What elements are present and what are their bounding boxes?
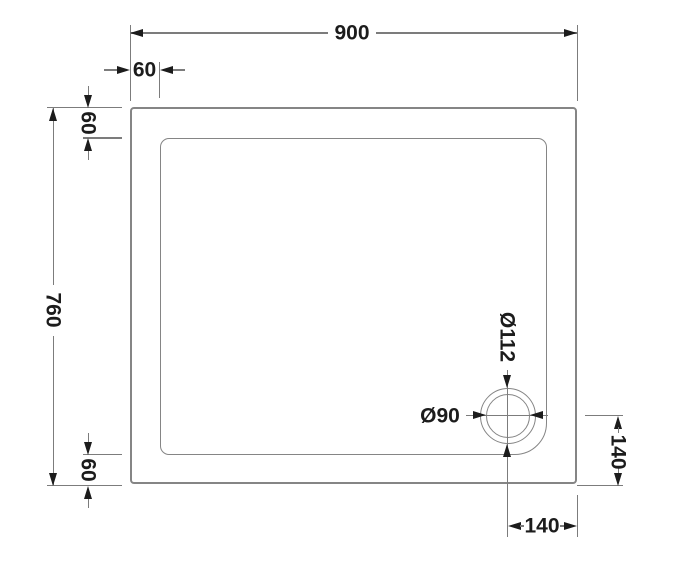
dimension-tail-rim-top-left — [104, 69, 117, 70]
dimension-line-900-right — [376, 32, 577, 33]
arrow-900-right — [564, 29, 577, 37]
dimension-stub-offset-right-top — [618, 427, 619, 433]
arrow-760-top — [49, 108, 57, 121]
arrow-offset-bottom-left — [508, 522, 521, 530]
arrow-rim-left-top-lower — [84, 138, 92, 151]
arrow-waste-inner-right — [530, 411, 543, 419]
dimension-line-900-left — [130, 32, 328, 33]
arrow-rim-left-top-upper — [84, 95, 92, 108]
dim-label-waste-outer-diameter: Ø112 — [497, 312, 518, 362]
dimension-line-760-top — [53, 108, 54, 285]
dim-label-waste-offset-right: 140 — [608, 434, 629, 469]
dimension-tail-rim-left-bottom-lower — [88, 499, 89, 508]
dim-label-waste-offset-bottom: 140 — [524, 516, 559, 537]
arrow-offset-right-bottom — [614, 473, 622, 486]
dim-label-rim-left-bottom: 60 — [78, 458, 99, 481]
arrow-900-left — [130, 29, 143, 37]
arrow-rim-left-bottom-upper — [84, 442, 92, 455]
arrow-rim-left-bottom-lower — [84, 486, 92, 499]
dimension-stub-offset-bottom-left — [520, 525, 524, 526]
dim-label-waste-inner-diameter: Ø90 — [420, 406, 460, 427]
dim-label-rim-left-top: 60 — [78, 111, 99, 134]
technical-drawing-canvas: 900 60 60 760 60 Ø112 Ø90 140 140 — [0, 0, 675, 581]
dim-label-overall-height: 760 — [43, 292, 64, 327]
arrow-offset-bottom-right — [564, 522, 577, 530]
dim-label-rim-top: 60 — [133, 60, 156, 81]
dimension-tail-rim-top-right — [172, 69, 185, 70]
dimension-line-760-bottom — [53, 336, 54, 486]
arrow-waste-outer-bottom — [503, 444, 511, 457]
arrow-waste-outer-top — [503, 375, 511, 388]
arrow-rim-top-right — [160, 66, 173, 74]
arrow-760-bottom — [49, 473, 57, 486]
dim-label-overall-width: 900 — [334, 23, 369, 44]
dimension-tail-rim-left-top-lower — [88, 151, 89, 160]
arrow-rim-top-left — [117, 66, 130, 74]
extension-line-offset-bottom-right — [577, 495, 578, 537]
arrow-waste-inner-left — [473, 411, 486, 419]
